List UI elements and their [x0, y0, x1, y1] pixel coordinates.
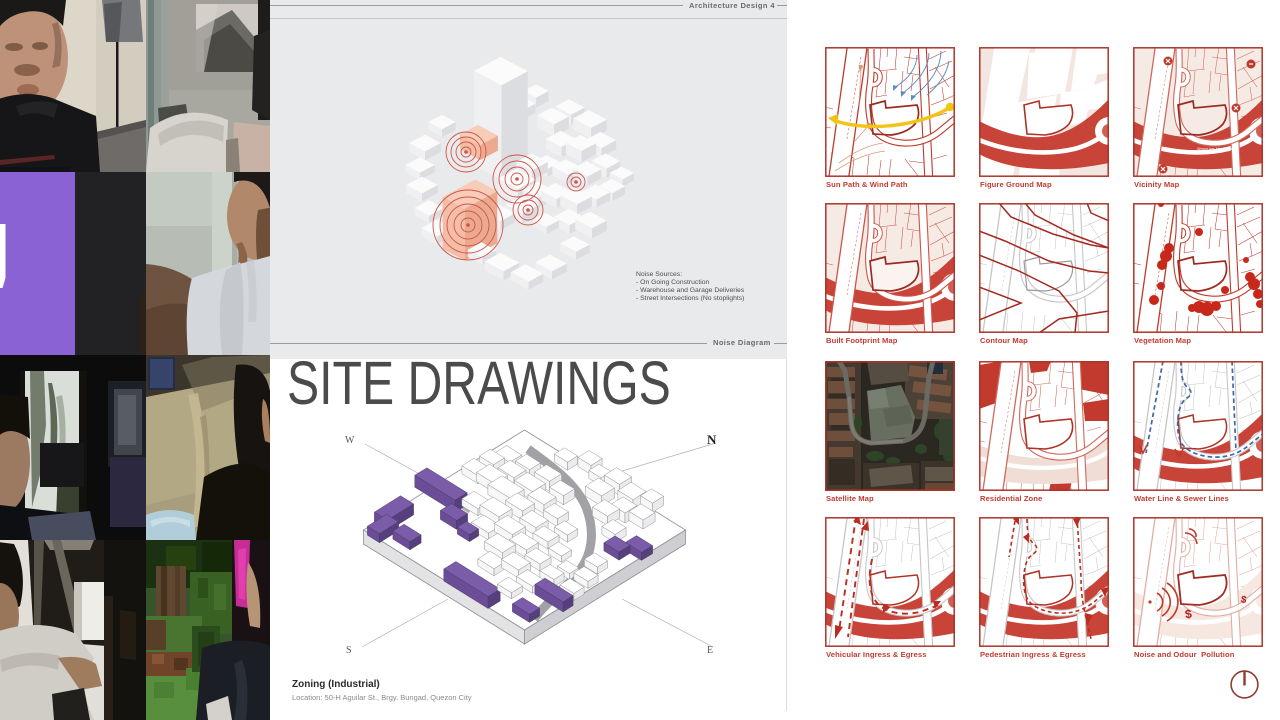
svg-text:Gilmore Ave. Magdalena: Gilmore Ave. Magdalena	[1197, 147, 1232, 151]
